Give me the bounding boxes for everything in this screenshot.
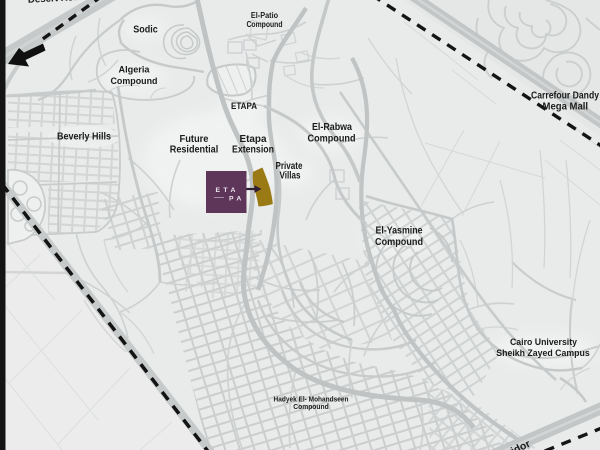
svg-text:Algeria: Algeria xyxy=(119,65,151,76)
svg-text:Compound: Compound xyxy=(111,76,158,87)
svg-text:Sheikh Zayed Campus: Sheikh Zayed Campus xyxy=(496,348,590,358)
svg-text:Villas: Villas xyxy=(280,170,301,182)
svg-text:Compound: Compound xyxy=(308,133,356,145)
svg-text:Compound: Compound xyxy=(375,236,423,248)
svg-text:PA: PA xyxy=(229,195,245,202)
svg-text:Compound: Compound xyxy=(247,20,283,29)
svg-text:Cairo University: Cairo University xyxy=(510,337,577,347)
svg-text:Beverly Hills: Beverly Hills xyxy=(57,131,111,143)
svg-text:Sodic: Sodic xyxy=(133,24,158,36)
svg-text:Carrefour Dandy: Carrefour Dandy xyxy=(531,90,599,101)
svg-text:El-Yasmine: El-Yasmine xyxy=(376,225,423,237)
svg-text:Extension: Extension xyxy=(232,144,274,156)
svg-text:Mega Mall: Mega Mall xyxy=(543,101,589,112)
svg-text:Residential: Residential xyxy=(170,144,219,156)
svg-text:Compound: Compound xyxy=(293,402,329,411)
svg-text:El-Patio: El-Patio xyxy=(251,11,278,20)
svg-text:ETA: ETA xyxy=(216,187,239,194)
svg-text:El-Rabwa: El-Rabwa xyxy=(312,121,352,133)
svg-text:ETAPA: ETAPA xyxy=(231,101,257,111)
